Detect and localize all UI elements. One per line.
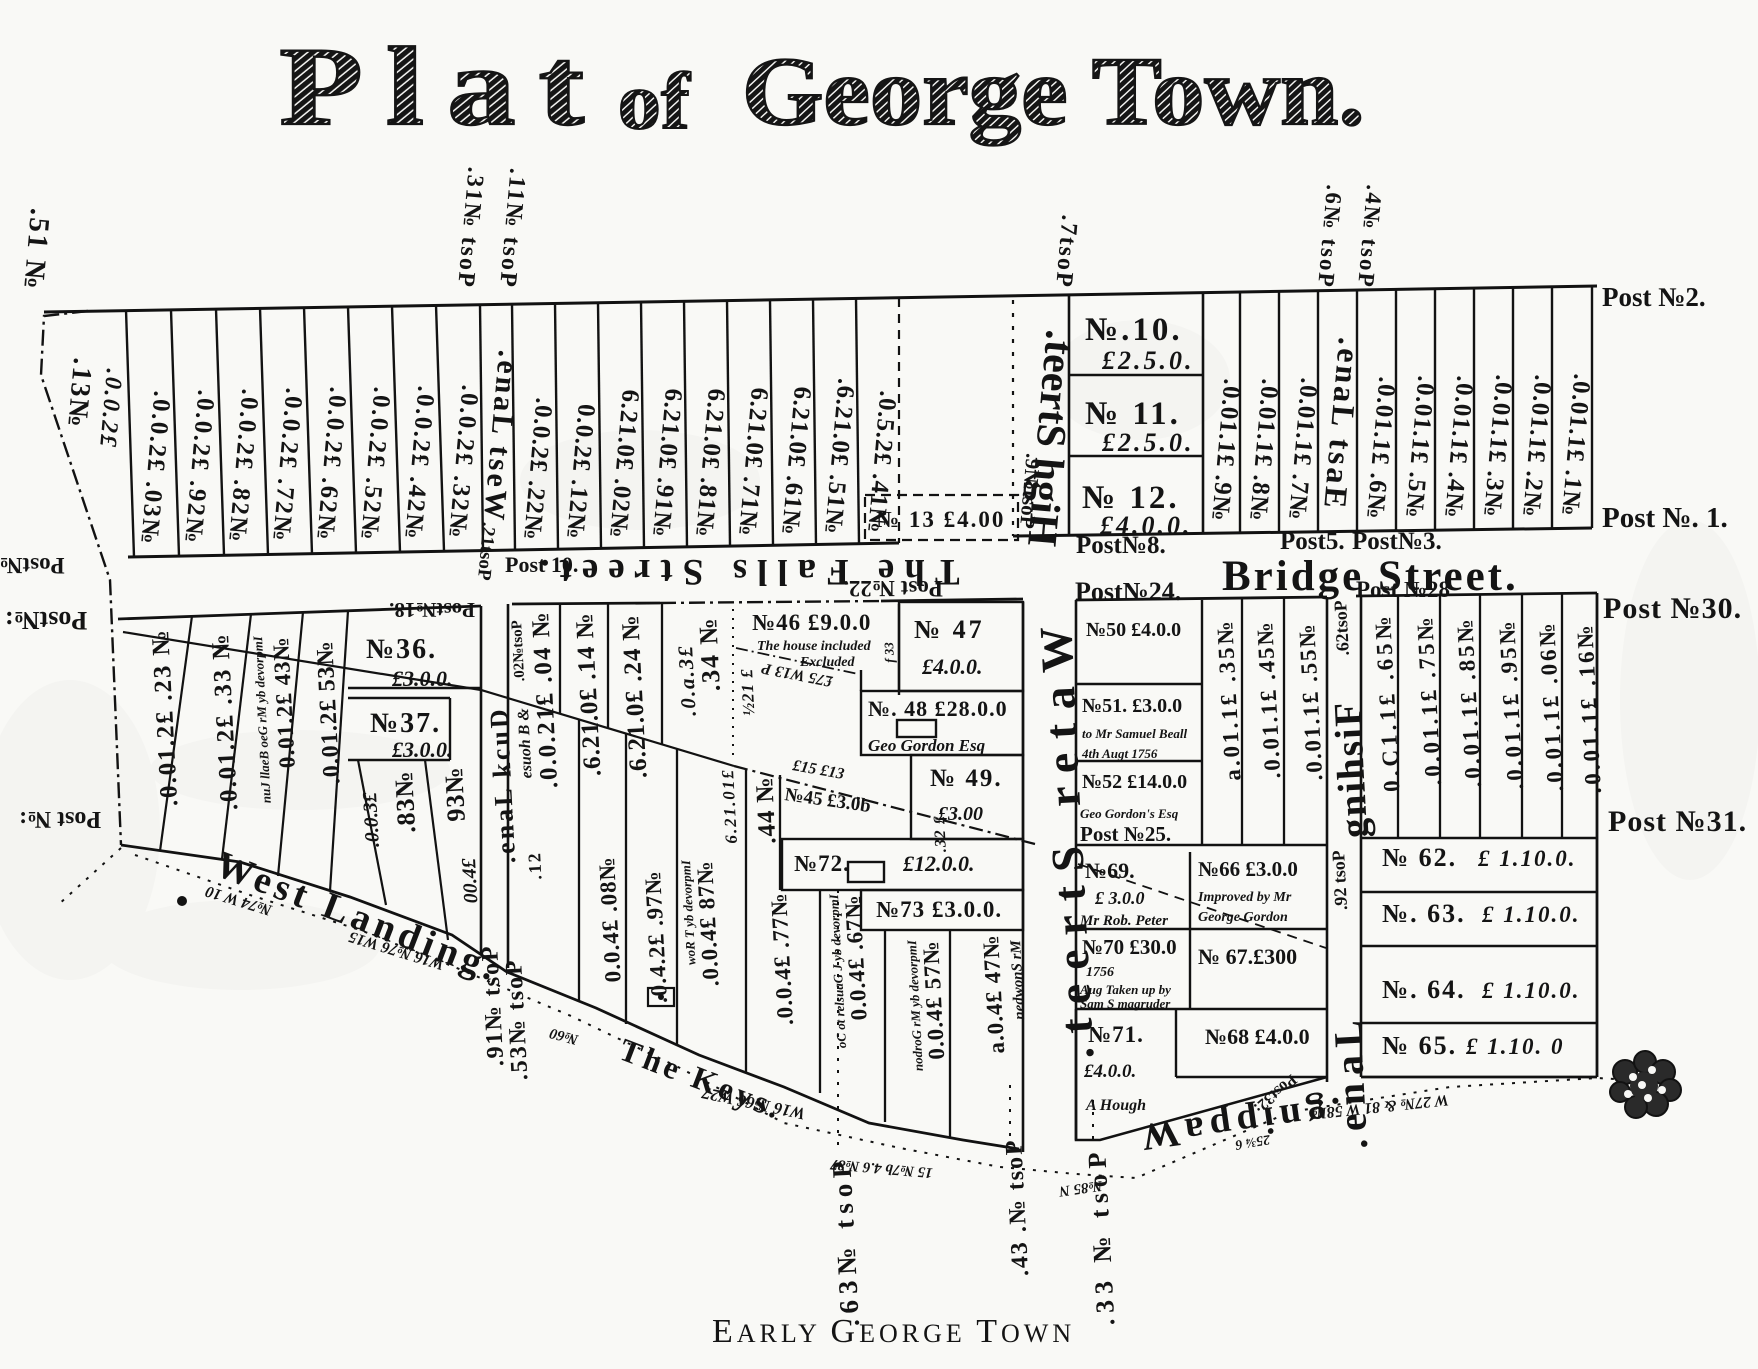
svg-text:№ 11.: № 11. xyxy=(1085,396,1181,432)
svg-text:of: of xyxy=(618,58,691,146)
svg-text:№51. £3.0.0: №51. £3.0.0 xyxy=(1082,695,1182,717)
svg-text:½21 £: ½21 £ xyxy=(737,668,758,716)
svg-text:£ 1.10.0.: £ 1.10.0. xyxy=(1477,846,1577,871)
svg-text:f 33: f 33 xyxy=(881,641,897,663)
svg-text:Post№: Post№ xyxy=(0,553,65,578)
svg-text:№. 48 £28.0.0: №. 48 £28.0.0 xyxy=(868,696,1008,721)
svg-text:Post№24.: Post№24. xyxy=(1075,577,1181,606)
svg-text:Post №. 1.: Post №. 1. xyxy=(1602,502,1728,534)
svg-text:£2.5.0.: £2.5.0. xyxy=(1101,428,1195,457)
svg-text:№. 63.: №. 63. xyxy=(1382,899,1466,928)
svg-text:№37.: №37. xyxy=(370,708,441,739)
svg-text:£ 1.10.0.: £ 1.10.0. xyxy=(1481,978,1581,1003)
svg-text:Post№8.: Post№8. xyxy=(1076,532,1166,559)
svg-text:№36.: №36. xyxy=(366,634,437,665)
svg-text:№ 49.: № 49. xyxy=(930,765,1003,792)
svg-text:.92 tsoP: .92 tsoP xyxy=(1328,850,1351,911)
svg-text:.0.0.3£: .0.0.3£ xyxy=(359,791,384,848)
svg-text:Post№3.: Post№3. xyxy=(1352,528,1442,555)
svg-text:George Town.: George Town. xyxy=(742,38,1365,146)
svg-text:Post №25.: Post №25. xyxy=(1080,822,1171,846)
svg-text:£ 3.0.0: £ 3.0.0 xyxy=(1094,888,1145,908)
svg-text:№ 47: № 47 xyxy=(914,615,985,644)
svg-text:№ 13 £4.00: № 13 £4.00 xyxy=(876,507,1005,532)
svg-text:№50 £4.0.0: №50 £4.0.0 xyxy=(1086,619,1181,641)
svg-text:Plat: Plat xyxy=(279,25,607,149)
svg-text:£3.0.0.: £3.0.0. xyxy=(391,737,453,762)
svg-text:№73 £3.0.0.: №73 £3.0.0. xyxy=(876,897,1002,922)
svg-text:£3.0.0.: £3.0.0. xyxy=(391,666,453,691)
svg-text:£4.0.0.: £4.0.0. xyxy=(921,654,983,679)
svg-text:Post №31.: Post №31. xyxy=(1608,805,1747,838)
svg-text:George Gordon: George Gordon xyxy=(1198,910,1288,925)
svg-text:Post №30.: Post №30. xyxy=(1603,592,1742,625)
svg-text:6.21.01£: 6.21.01£ xyxy=(718,768,741,844)
svg-text:The house included: The house included xyxy=(757,639,872,654)
svg-text:.02№tsoP: .02№tsoP xyxy=(509,620,528,682)
svg-text:№52 £14.0.0: №52 £14.0.0 xyxy=(1082,771,1187,793)
svg-text:№ 67.£300: № 67.£300 xyxy=(1198,944,1297,969)
svg-text:A Hough: A Hough xyxy=(1085,1097,1146,1114)
svg-text:£2.5.0.: £2.5.0. xyxy=(1101,346,1195,375)
svg-text:.13№: .13№ xyxy=(61,357,98,431)
svg-text:№46 £9.0.0: №46 £9.0.0 xyxy=(752,610,871,635)
svg-text:№ 65.: № 65. xyxy=(1382,1031,1457,1060)
svg-text:Geo Gordon Esq: Geo Gordon Esq xyxy=(868,736,986,755)
svg-text:№72.: №72. xyxy=(794,851,850,876)
svg-text:£3.00: £3.00 xyxy=(937,803,983,825)
svg-text:Excluded: Excluded xyxy=(799,655,855,670)
svg-text:4th Augt 1756: 4th Augt 1756 xyxy=(1081,746,1158,761)
svg-text:№68 £4.0.0: №68 £4.0.0 xyxy=(1205,1024,1310,1049)
svg-text:Post №28: Post №28 xyxy=(1356,577,1450,602)
svg-text:Post№:: Post№: xyxy=(5,606,87,635)
svg-text:to Mr Samuel Beall: to Mr Samuel Beall xyxy=(1082,726,1187,741)
svg-text:£ 1.10. 0: £ 1.10. 0 xyxy=(1465,1034,1565,1059)
svg-text:№. 64.: №. 64. xyxy=(1382,975,1466,1004)
svg-text:№.10.: №.10. xyxy=(1085,312,1183,348)
svg-text:Geo Gordon's Esq: Geo Gordon's Esq xyxy=(1080,806,1179,821)
svg-text:Improved by Mr: Improved by Mr xyxy=(1197,890,1292,905)
svg-text:£12.0.0.: £12.0.0. xyxy=(902,851,975,876)
svg-text:.0.a.3£: .0.a.3£ xyxy=(673,644,701,717)
svg-text:Post №:: Post №: xyxy=(19,806,101,832)
svg-text:EARLY GEORGE TOWN: EARLY GEORGE TOWN xyxy=(712,1313,1075,1350)
svg-text:№66 £3.0.0: №66 £3.0.0 xyxy=(1198,857,1298,881)
svg-text:№ 62.: № 62. xyxy=(1382,843,1457,872)
svg-text:£ 1.10.0.: £ 1.10.0. xyxy=(1481,902,1581,927)
svg-text:.44 №: .44 № xyxy=(751,776,782,845)
svg-text:gnihsiF: gnihsiF xyxy=(1326,700,1376,840)
svg-text:Post №22.: Post №22. xyxy=(843,576,943,601)
svg-text:93№: 93№ xyxy=(439,766,471,823)
svg-text:Post5.: Post5. xyxy=(1280,528,1345,555)
svg-text:.83№: .83№ xyxy=(389,770,421,834)
svg-text:.12: .12 xyxy=(524,851,545,881)
svg-text:£4.0.0.: £4.0.0. xyxy=(1083,1061,1136,1082)
svg-text:Post №2.: Post №2. xyxy=(1602,282,1706,312)
svg-text:00.4£: 00.4£ xyxy=(458,857,482,904)
svg-text:.62tsoP: .62tsoP xyxy=(1330,600,1353,656)
